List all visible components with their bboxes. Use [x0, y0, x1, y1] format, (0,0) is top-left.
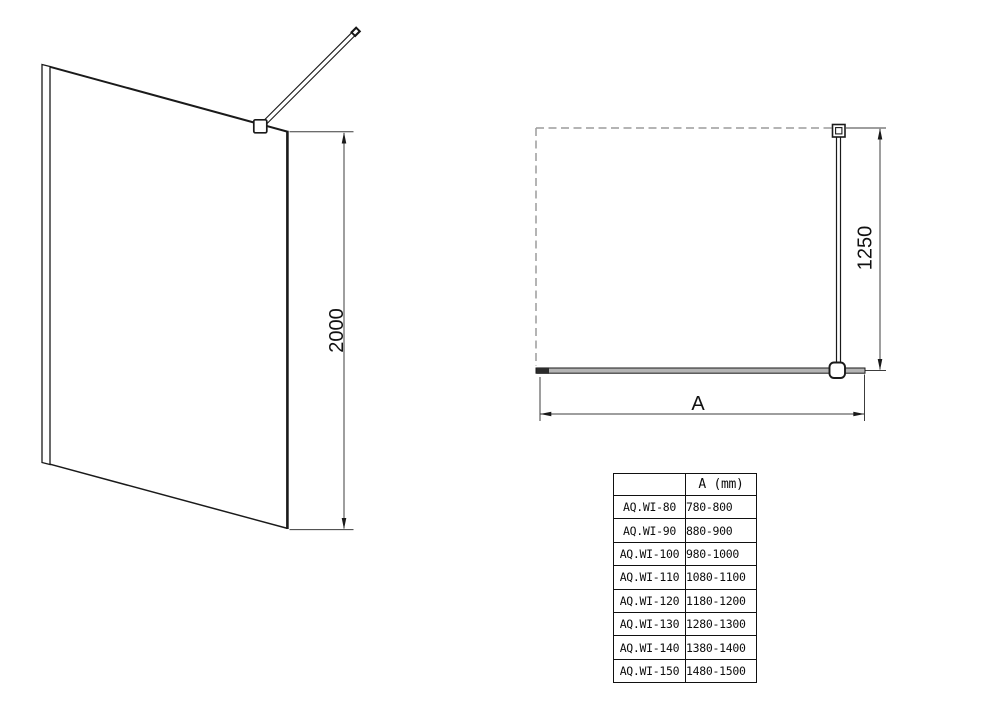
- table-row: AQ.WI-150 1480-1500: [614, 659, 757, 682]
- size-table: A (mm) AQ.WI-80 780-800 AQ.WI-90 880-900…: [613, 473, 757, 683]
- model-cell: AQ.WI-150: [614, 659, 686, 682]
- range-cell: 780-800: [686, 496, 757, 519]
- model-cell: AQ.WI-90: [614, 519, 686, 542]
- header-dimension-cell: A (mm): [686, 474, 757, 496]
- range-cell: 1080-1100: [686, 566, 757, 589]
- arrowhead-up-icon: [342, 132, 347, 143]
- support-bar: [261, 26, 361, 126]
- bar-glass-clamp-plan: [830, 363, 846, 379]
- technical-drawing-svg: 2000: [0, 0, 1000, 707]
- arrowhead-up-icon: [878, 128, 883, 139]
- dimension-a: A: [540, 375, 865, 422]
- range-cell: 1180-1200: [686, 589, 757, 612]
- height-dimension-label: 2000: [326, 308, 348, 353]
- model-cell: AQ.WI-130: [614, 612, 686, 635]
- size-table-header-row: A (mm): [614, 474, 757, 496]
- shower-outline-dashed: [536, 128, 832, 366]
- table-row: AQ.WI-110 1080-1100: [614, 566, 757, 589]
- arrowhead-left-icon: [540, 412, 551, 417]
- support-bar-tube: [262, 31, 356, 125]
- arrowhead-down-icon: [878, 359, 883, 370]
- glass-top-edge: [50, 67, 287, 132]
- model-cell: AQ.WI-120: [614, 589, 686, 612]
- stabilizer-bar-plan: [833, 125, 846, 364]
- glass-strip: [536, 368, 865, 373]
- table-row: AQ.WI-100 980-1000: [614, 542, 757, 565]
- arrowhead-right-icon: [853, 412, 864, 417]
- dimension-1250: 1250: [845, 128, 886, 371]
- table-row: AQ.WI-120 1180-1200: [614, 589, 757, 612]
- arrowhead-down-icon: [342, 518, 347, 529]
- glass-panel-plan: [536, 367, 865, 373]
- drawing-sheet: 2000: [0, 0, 1000, 707]
- wall-profile-plan: [537, 367, 550, 373]
- bar-glass-clamp: [254, 120, 267, 133]
- range-cell: 980-1000: [686, 542, 757, 565]
- model-cell: AQ.WI-80: [614, 496, 686, 519]
- model-cell: AQ.WI-140: [614, 636, 686, 659]
- range-cell: 1380-1400: [686, 636, 757, 659]
- table-row: AQ.WI-130 1280-1300: [614, 612, 757, 635]
- model-cell: AQ.WI-100: [614, 542, 686, 565]
- dimension-2000: 2000: [290, 132, 354, 530]
- table-row: AQ.WI-80 780-800: [614, 496, 757, 519]
- wall-profile: [42, 65, 50, 465]
- range-cell: 1280-1300: [686, 612, 757, 635]
- perspective-view: 2000: [42, 26, 361, 529]
- model-cell: AQ.WI-110: [614, 566, 686, 589]
- header-model-cell: [614, 474, 686, 496]
- table-row: AQ.WI-90 880-900: [614, 519, 757, 542]
- depth-dimension-label: 1250: [855, 226, 877, 271]
- plan-view: 1250 A: [536, 125, 886, 422]
- glass-panel: [50, 67, 287, 529]
- range-cell: 1480-1500: [686, 659, 757, 682]
- table-row: AQ.WI-140 1380-1400: [614, 636, 757, 659]
- range-cell: 880-900: [686, 519, 757, 542]
- glass-bottom-edge: [50, 464, 287, 528]
- width-dimension-label: A: [691, 393, 705, 415]
- wall-bracket-inner: [836, 128, 842, 134]
